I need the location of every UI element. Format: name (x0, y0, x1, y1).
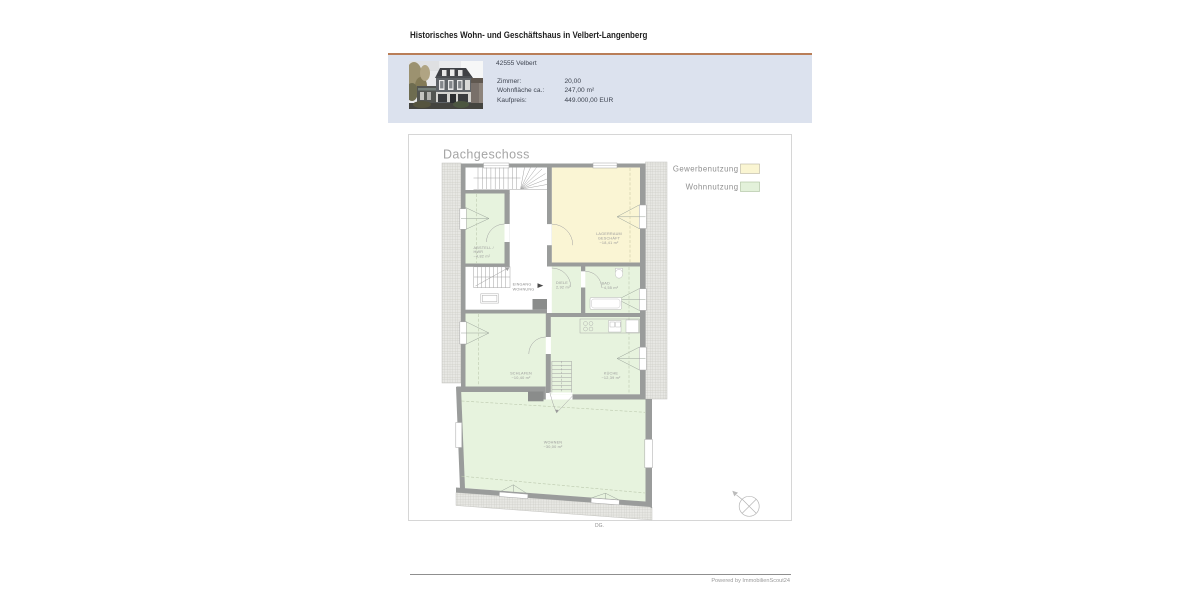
svg-text:LAGERRAUM: LAGERRAUM (596, 232, 622, 236)
svg-text:~30,00 m²: ~30,00 m² (543, 445, 563, 449)
svg-text:SCHLAFEN: SCHLAFEN (510, 372, 532, 376)
svg-text:~4,82 m²: ~4,82 m² (474, 254, 491, 258)
svg-text:~18,41 m²: ~18,41 m² (599, 241, 619, 245)
svg-text:Dachgeschoss: Dachgeschoss (443, 147, 530, 161)
svg-text:WOHNEN: WOHNEN (544, 441, 563, 445)
svg-text:~4,55 m²: ~4,55 m² (602, 286, 619, 290)
svg-text:Wohnnutzung: Wohnnutzung (686, 182, 739, 191)
svg-text:WOHNUNG: WOHNUNG (513, 287, 535, 291)
svg-text:KÜCHE: KÜCHE (604, 372, 619, 376)
svg-text:Gewerbenutzung: Gewerbenutzung (673, 164, 739, 173)
svg-text:EINGANG: EINGANG (513, 283, 532, 287)
svg-text:DIELE: DIELE (556, 281, 568, 285)
svg-text:GESCHÄFT: GESCHÄFT (598, 237, 621, 241)
svg-text:BAD: BAD (602, 282, 610, 286)
svg-text:~10,40 m²: ~10,40 m² (511, 376, 531, 380)
svg-text:~12,39 m²: ~12,39 m² (601, 376, 621, 380)
svg-text:2,92 m²: 2,92 m² (556, 286, 571, 290)
